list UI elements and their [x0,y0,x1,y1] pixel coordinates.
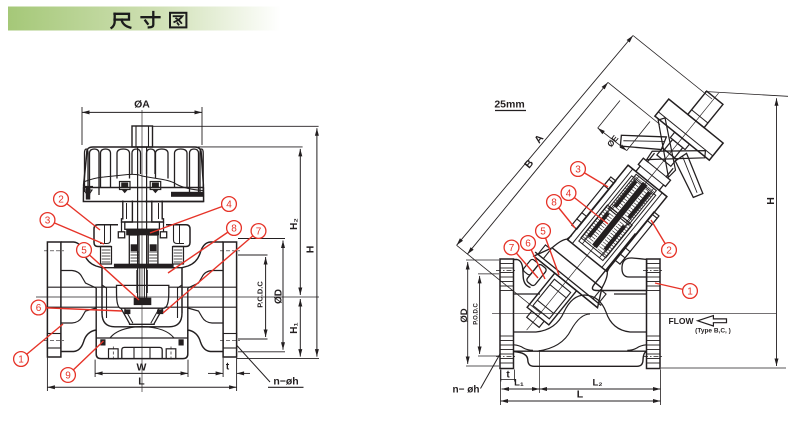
svg-text:3: 3 [575,165,581,176]
svg-text:2: 2 [666,246,672,257]
svg-text:L₁: L₁ [514,378,524,389]
svg-text:25mm: 25mm [494,99,524,111]
svg-text:ØA: ØA [134,99,150,111]
svg-text:FLOW: FLOW [668,316,694,326]
svg-text:L₂: L₂ [592,378,602,389]
svg-text:4: 4 [566,189,572,200]
svg-text:1: 1 [18,355,24,366]
svg-text:6: 6 [36,303,42,314]
svg-text:9: 9 [65,371,71,382]
svg-text:H: H [765,197,777,205]
svg-text:ØD: ØD [274,289,285,304]
svg-text:6: 6 [525,239,531,250]
svg-text:t: t [506,370,510,381]
svg-text:5: 5 [81,246,87,257]
svg-text:4: 4 [226,200,232,211]
svg-text:1: 1 [687,287,693,298]
svg-text:5: 5 [540,227,546,238]
svg-text:ØD: ØD [459,308,470,322]
svg-text:L: L [138,376,145,388]
svg-text:H: H [305,246,317,254]
svg-text:H₁: H₁ [289,322,300,333]
svg-text:7: 7 [256,227,262,238]
svg-text:8: 8 [231,224,237,235]
svg-text:n−øh: n−øh [273,376,298,388]
svg-text:2: 2 [58,195,64,206]
svg-text:H₂: H₂ [289,218,300,230]
svg-text:(Type B,C, ): (Type B,C, ) [695,328,731,335]
svg-text:7: 7 [509,243,515,254]
svg-text:n− øh: n− øh [453,385,480,396]
svg-text:A: A [532,132,546,146]
svg-text:t: t [226,362,230,373]
svg-text:3: 3 [45,216,51,227]
svg-text:L: L [577,389,584,401]
svg-text:P.O.D.C: P.O.D.C [473,303,479,325]
svg-text:P.C.D.C: P.C.D.C [256,281,265,308]
svg-text:8: 8 [551,198,557,209]
svg-text:W: W [137,362,147,374]
